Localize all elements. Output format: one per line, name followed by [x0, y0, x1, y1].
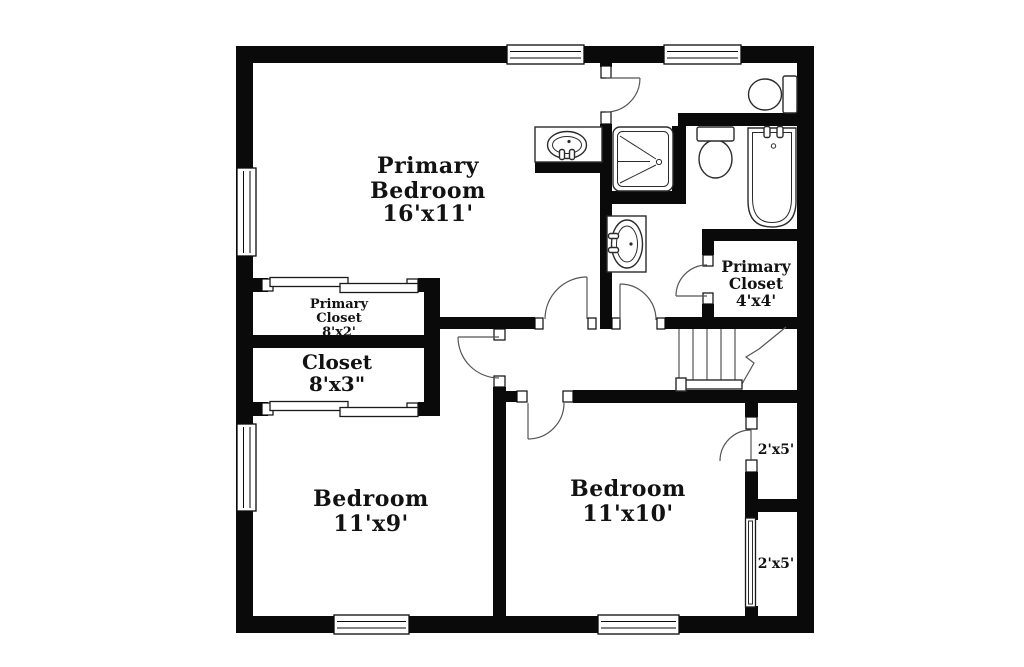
sliding-door	[746, 518, 756, 607]
door-jamb	[588, 318, 596, 329]
room-size: 2'x5'	[758, 442, 794, 458]
door-jamb	[657, 318, 665, 329]
stair-railing	[684, 380, 742, 389]
door-jamb	[746, 417, 757, 429]
window	[507, 45, 584, 64]
room-size: 11'x10'	[582, 501, 673, 527]
wall	[702, 304, 714, 317]
room-size: 2'x5'	[758, 556, 794, 572]
floor-plan: Primary Bedroom 16'x11' Primary Closet 8…	[0, 0, 1024, 667]
wall	[665, 317, 797, 329]
room-size: 8'x2'	[322, 325, 356, 340]
window	[237, 168, 256, 256]
wall	[608, 191, 686, 204]
sink-vanity-icon	[607, 216, 646, 272]
room-size: 4'x4'	[736, 291, 776, 310]
room-name: Closet	[316, 311, 362, 326]
sliding-door	[270, 402, 348, 411]
room-size: 8'x3"	[309, 372, 365, 396]
wall	[430, 317, 535, 329]
wall-bottom	[236, 616, 814, 633]
wall	[745, 403, 758, 417]
door-jamb	[535, 318, 543, 329]
wall	[535, 162, 605, 173]
wall-left	[236, 46, 253, 633]
wall	[745, 499, 797, 512]
sliding-door	[340, 284, 418, 293]
room-name: Bedroom	[570, 476, 686, 502]
toilet-icon	[749, 76, 798, 113]
sliding-door	[270, 278, 348, 287]
wall	[702, 241, 714, 255]
page-background	[0, 0, 1024, 667]
door-jamb	[703, 255, 713, 266]
window	[237, 424, 256, 511]
toilet-icon	[697, 127, 734, 178]
shower-icon	[613, 127, 673, 191]
stair-newel-post	[676, 378, 686, 391]
door-jamb	[601, 66, 611, 78]
wall	[745, 472, 758, 499]
floor-plan-drawing: Primary Bedroom 16'x11' Primary Closet 8…	[0, 0, 1024, 667]
window	[664, 45, 741, 64]
door-jamb	[601, 112, 611, 124]
door-jamb	[612, 318, 620, 329]
wall	[702, 229, 797, 241]
wall	[506, 391, 517, 402]
room-size: 11'x9'	[333, 511, 409, 537]
door-jamb	[746, 460, 757, 472]
room-name: Primary	[377, 153, 480, 179]
room-size: 16'x11'	[382, 201, 473, 227]
room-label-closet-2x5-lower: 2'x5'	[758, 556, 794, 572]
wall	[678, 113, 797, 126]
room-label-closet-2x5-upper: 2'x5'	[758, 442, 794, 458]
sink-vanity-icon	[535, 127, 602, 162]
wall	[493, 387, 506, 616]
room-label-closet-8x3: Closet 8'x3"	[302, 350, 373, 396]
room-name: Closet	[302, 350, 373, 374]
wall	[573, 390, 797, 403]
door-jamb	[703, 293, 713, 304]
room-label-bedroom-11x10: Bedroom 11'x10'	[570, 476, 686, 527]
window	[598, 615, 679, 634]
door-jamb	[494, 329, 505, 340]
door-jamb	[563, 391, 573, 402]
window	[334, 615, 409, 634]
sliding-door	[340, 408, 418, 417]
room-name: Primary	[310, 297, 369, 312]
wall-right	[797, 46, 814, 633]
room-label-primary-bedroom: Primary Bedroom 16'x11'	[370, 153, 486, 227]
bathtub-icon	[748, 127, 796, 228]
door-jamb	[517, 391, 527, 402]
wall	[424, 278, 440, 416]
room-name: Bedroom	[313, 486, 429, 512]
